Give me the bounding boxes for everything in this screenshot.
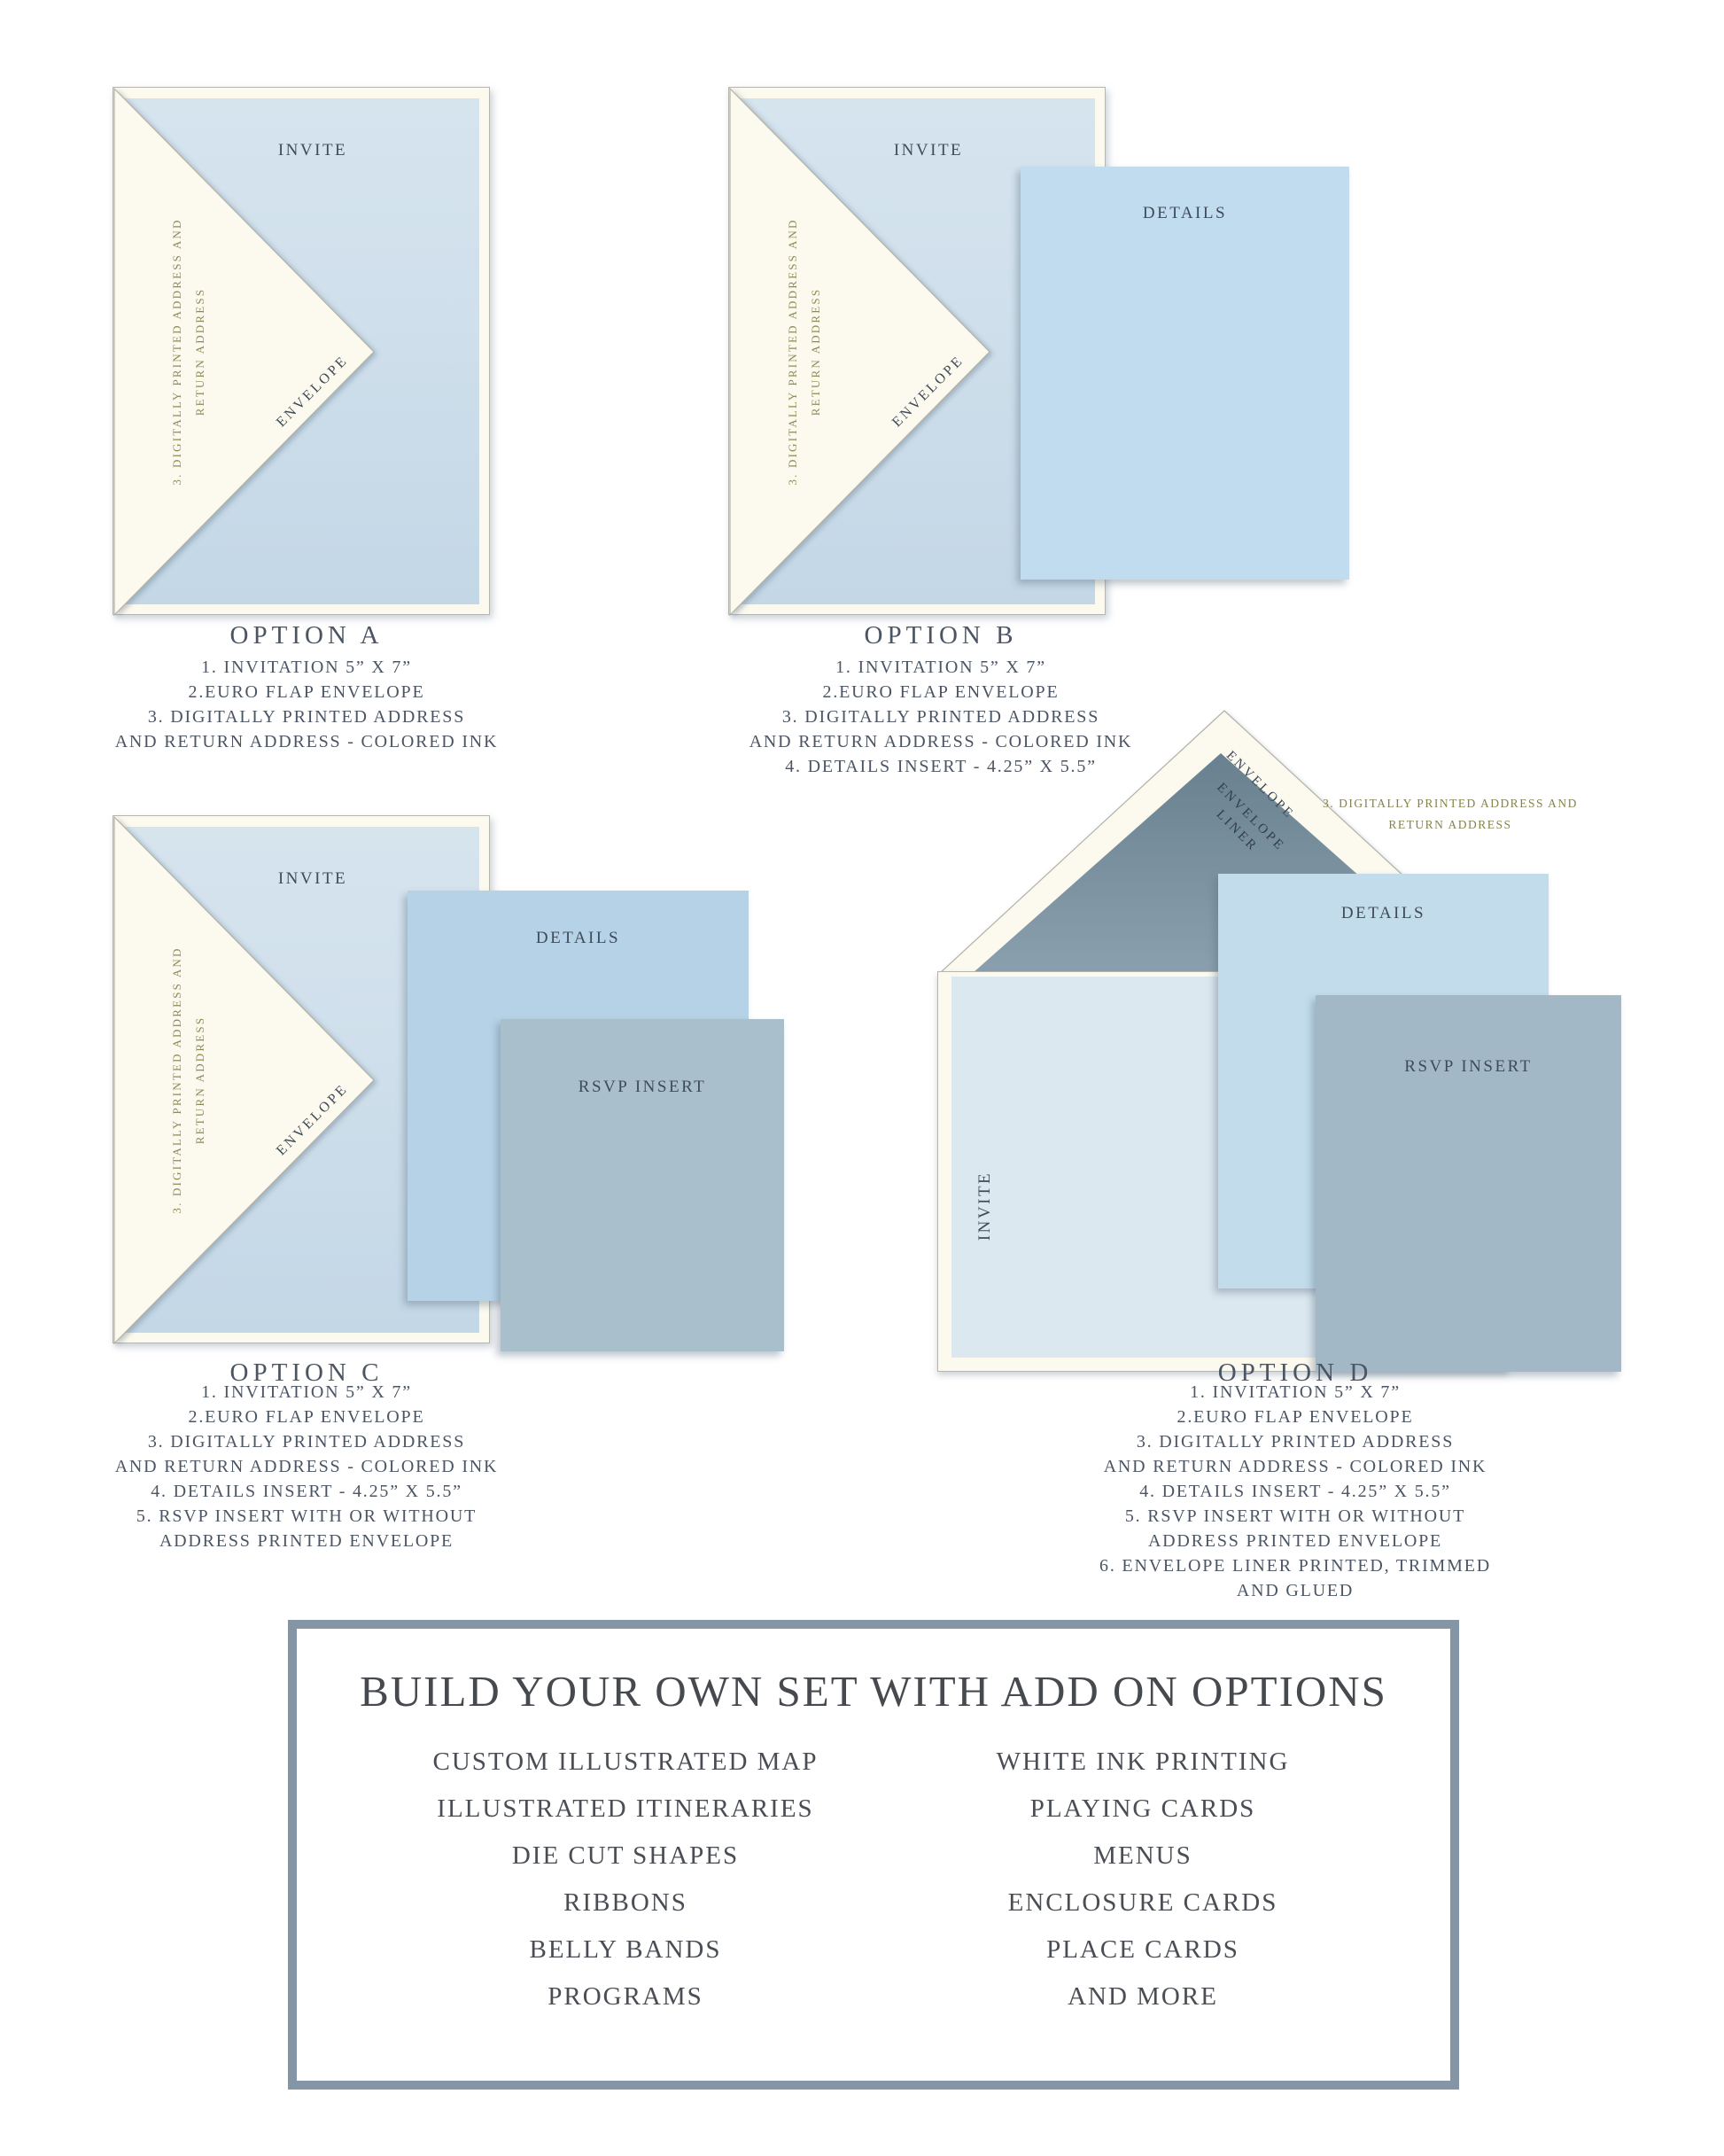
addon-box-title: BUILD YOUR OWN SET WITH ADD ON OPTIONS bbox=[332, 1666, 1415, 1716]
addon-item-right: ENCLOSURE CARDS bbox=[877, 1888, 1409, 1918]
addon-item-left: PROGRAMS bbox=[360, 1982, 891, 2012]
option-a-invite-label: INVITE bbox=[224, 141, 401, 160]
option-d-rsvp-card: RSVP INSERT bbox=[1316, 995, 1621, 1372]
address-note-line2: RETURN ADDRESS bbox=[1273, 814, 1627, 836]
list-line: 1. INVITATION 5” X 7” bbox=[719, 655, 1162, 680]
list-line: 2.EURO FLAP ENVELOPE bbox=[85, 680, 528, 704]
addon-item-right: WHITE INK PRINTING bbox=[877, 1747, 1409, 1777]
addon-item-left: ILLUSTRATED ITINERARIES bbox=[360, 1794, 891, 1824]
flap-note-line2: RETURN ADDRESS bbox=[804, 210, 827, 494]
flap-note-line2: RETURN ADDRESS bbox=[189, 938, 212, 1222]
addon-item-right: PLACE CARDS bbox=[877, 1935, 1409, 1965]
list-line: 2.EURO FLAP ENVELOPE bbox=[85, 1405, 528, 1429]
list-line: 3. DIGITALLY PRINTED ADDRESS bbox=[85, 704, 528, 729]
option-c-flap-note: 3. DIGITALLY PRINTED ADDRESS AND RETURN … bbox=[166, 938, 212, 1222]
list-line: AND RETURN ADDRESS - COLORED INK bbox=[85, 1454, 528, 1479]
flap-note-line1: 3. DIGITALLY PRINTED ADDRESS AND bbox=[166, 210, 189, 494]
option-a-list: 1. INVITATION 5” X 7” 2.EURO FLAP ENVELO… bbox=[85, 655, 528, 754]
addon-item-left: DIE CUT SHAPES bbox=[360, 1841, 891, 1871]
flap-note-line1: 3. DIGITALLY PRINTED ADDRESS AND bbox=[166, 938, 189, 1222]
option-b-details-label: DETAILS bbox=[1021, 204, 1349, 223]
list-line: 5. RSVP INSERT WITH OR WITHOUT bbox=[85, 1504, 528, 1529]
option-d-invite-label: INVITE bbox=[975, 1135, 995, 1277]
list-line: AND RETURN ADDRESS - COLORED INK bbox=[1074, 1454, 1517, 1479]
flap-note-line1: 3. DIGITALLY PRINTED ADDRESS AND bbox=[781, 210, 804, 494]
list-line: 3. DIGITALLY PRINTED ADDRESS bbox=[85, 1429, 528, 1454]
address-note-line1: 3. DIGITALLY PRINTED ADDRESS AND bbox=[1273, 793, 1627, 814]
list-line: 2.EURO FLAP ENVELOPE bbox=[1074, 1405, 1517, 1429]
option-b-caption: OPTION B bbox=[764, 621, 1118, 650]
option-d-rsvp-label: RSVP INSERT bbox=[1316, 1057, 1621, 1077]
list-line: ADDRESS PRINTED ENVELOPE bbox=[85, 1529, 528, 1553]
option-b-flap-note: 3. DIGITALLY PRINTED ADDRESS AND RETURN … bbox=[781, 210, 827, 494]
addon-item-right: PLAYING CARDS bbox=[877, 1794, 1409, 1824]
addon-item-left: BELLY BANDS bbox=[360, 1935, 891, 1965]
option-c-invite-label: INVITE bbox=[224, 869, 401, 889]
list-line: 2.EURO FLAP ENVELOPE bbox=[719, 680, 1162, 704]
list-line: AND RETURN ADDRESS - COLORED INK bbox=[85, 729, 528, 754]
addon-item-left: CUSTOM ILLUSTRATED MAP bbox=[360, 1747, 891, 1777]
list-line: 6. ENVELOPE LINER PRINTED, TRIMMED bbox=[1074, 1553, 1517, 1578]
list-line: 4. DETAILS INSERT - 4.25” X 5.5” bbox=[85, 1479, 528, 1504]
list-line: AND GLUED bbox=[1074, 1578, 1517, 1603]
addon-item-left: RIBBONS bbox=[360, 1888, 891, 1918]
list-line: 5. RSVP INSERT WITH OR WITHOUT bbox=[1074, 1504, 1517, 1529]
addon-item-right: AND MORE bbox=[877, 1982, 1409, 2012]
option-b-invite-label: INVITE bbox=[840, 141, 1017, 160]
option-a-envelope: 3. DIGITALLY PRINTED ADDRESS AND RETURN … bbox=[113, 87, 490, 615]
addon-item-right: MENUS bbox=[877, 1841, 1409, 1871]
flap-note-line2: RETURN ADDRESS bbox=[189, 210, 212, 494]
list-line: 1. INVITATION 5” X 7” bbox=[85, 655, 528, 680]
option-a-caption: OPTION A bbox=[129, 621, 484, 650]
option-c-rsvp-card: RSVP INSERT bbox=[501, 1019, 784, 1351]
list-line: ADDRESS PRINTED ENVELOPE bbox=[1074, 1529, 1517, 1553]
option-c-details-label: DETAILS bbox=[408, 929, 749, 948]
option-c-rsvp-label: RSVP INSERT bbox=[501, 1078, 784, 1097]
option-d-address-note: 3. DIGITALLY PRINTED ADDRESS AND RETURN … bbox=[1273, 793, 1627, 836]
list-line: 3. DIGITALLY PRINTED ADDRESS bbox=[1074, 1429, 1517, 1454]
option-d-details-label: DETAILS bbox=[1218, 904, 1549, 923]
list-line: 1. INVITATION 5” X 7” bbox=[85, 1380, 528, 1405]
option-d-list: 1. INVITATION 5” X 7” 2.EURO FLAP ENVELO… bbox=[1074, 1380, 1517, 1603]
option-a-flap-note: 3. DIGITALLY PRINTED ADDRESS AND RETURN … bbox=[166, 210, 212, 494]
list-line: 4. DETAILS INSERT - 4.25” X 5.5” bbox=[1074, 1479, 1517, 1504]
list-line: 1. INVITATION 5” X 7” bbox=[1074, 1380, 1517, 1405]
page: { "palette": { "cream": "#fcfaef", "invi… bbox=[0, 0, 1724, 2156]
option-b-details-card: DETAILS bbox=[1021, 167, 1349, 580]
option-c-list: 1. INVITATION 5” X 7” 2.EURO FLAP ENVELO… bbox=[85, 1380, 528, 1553]
